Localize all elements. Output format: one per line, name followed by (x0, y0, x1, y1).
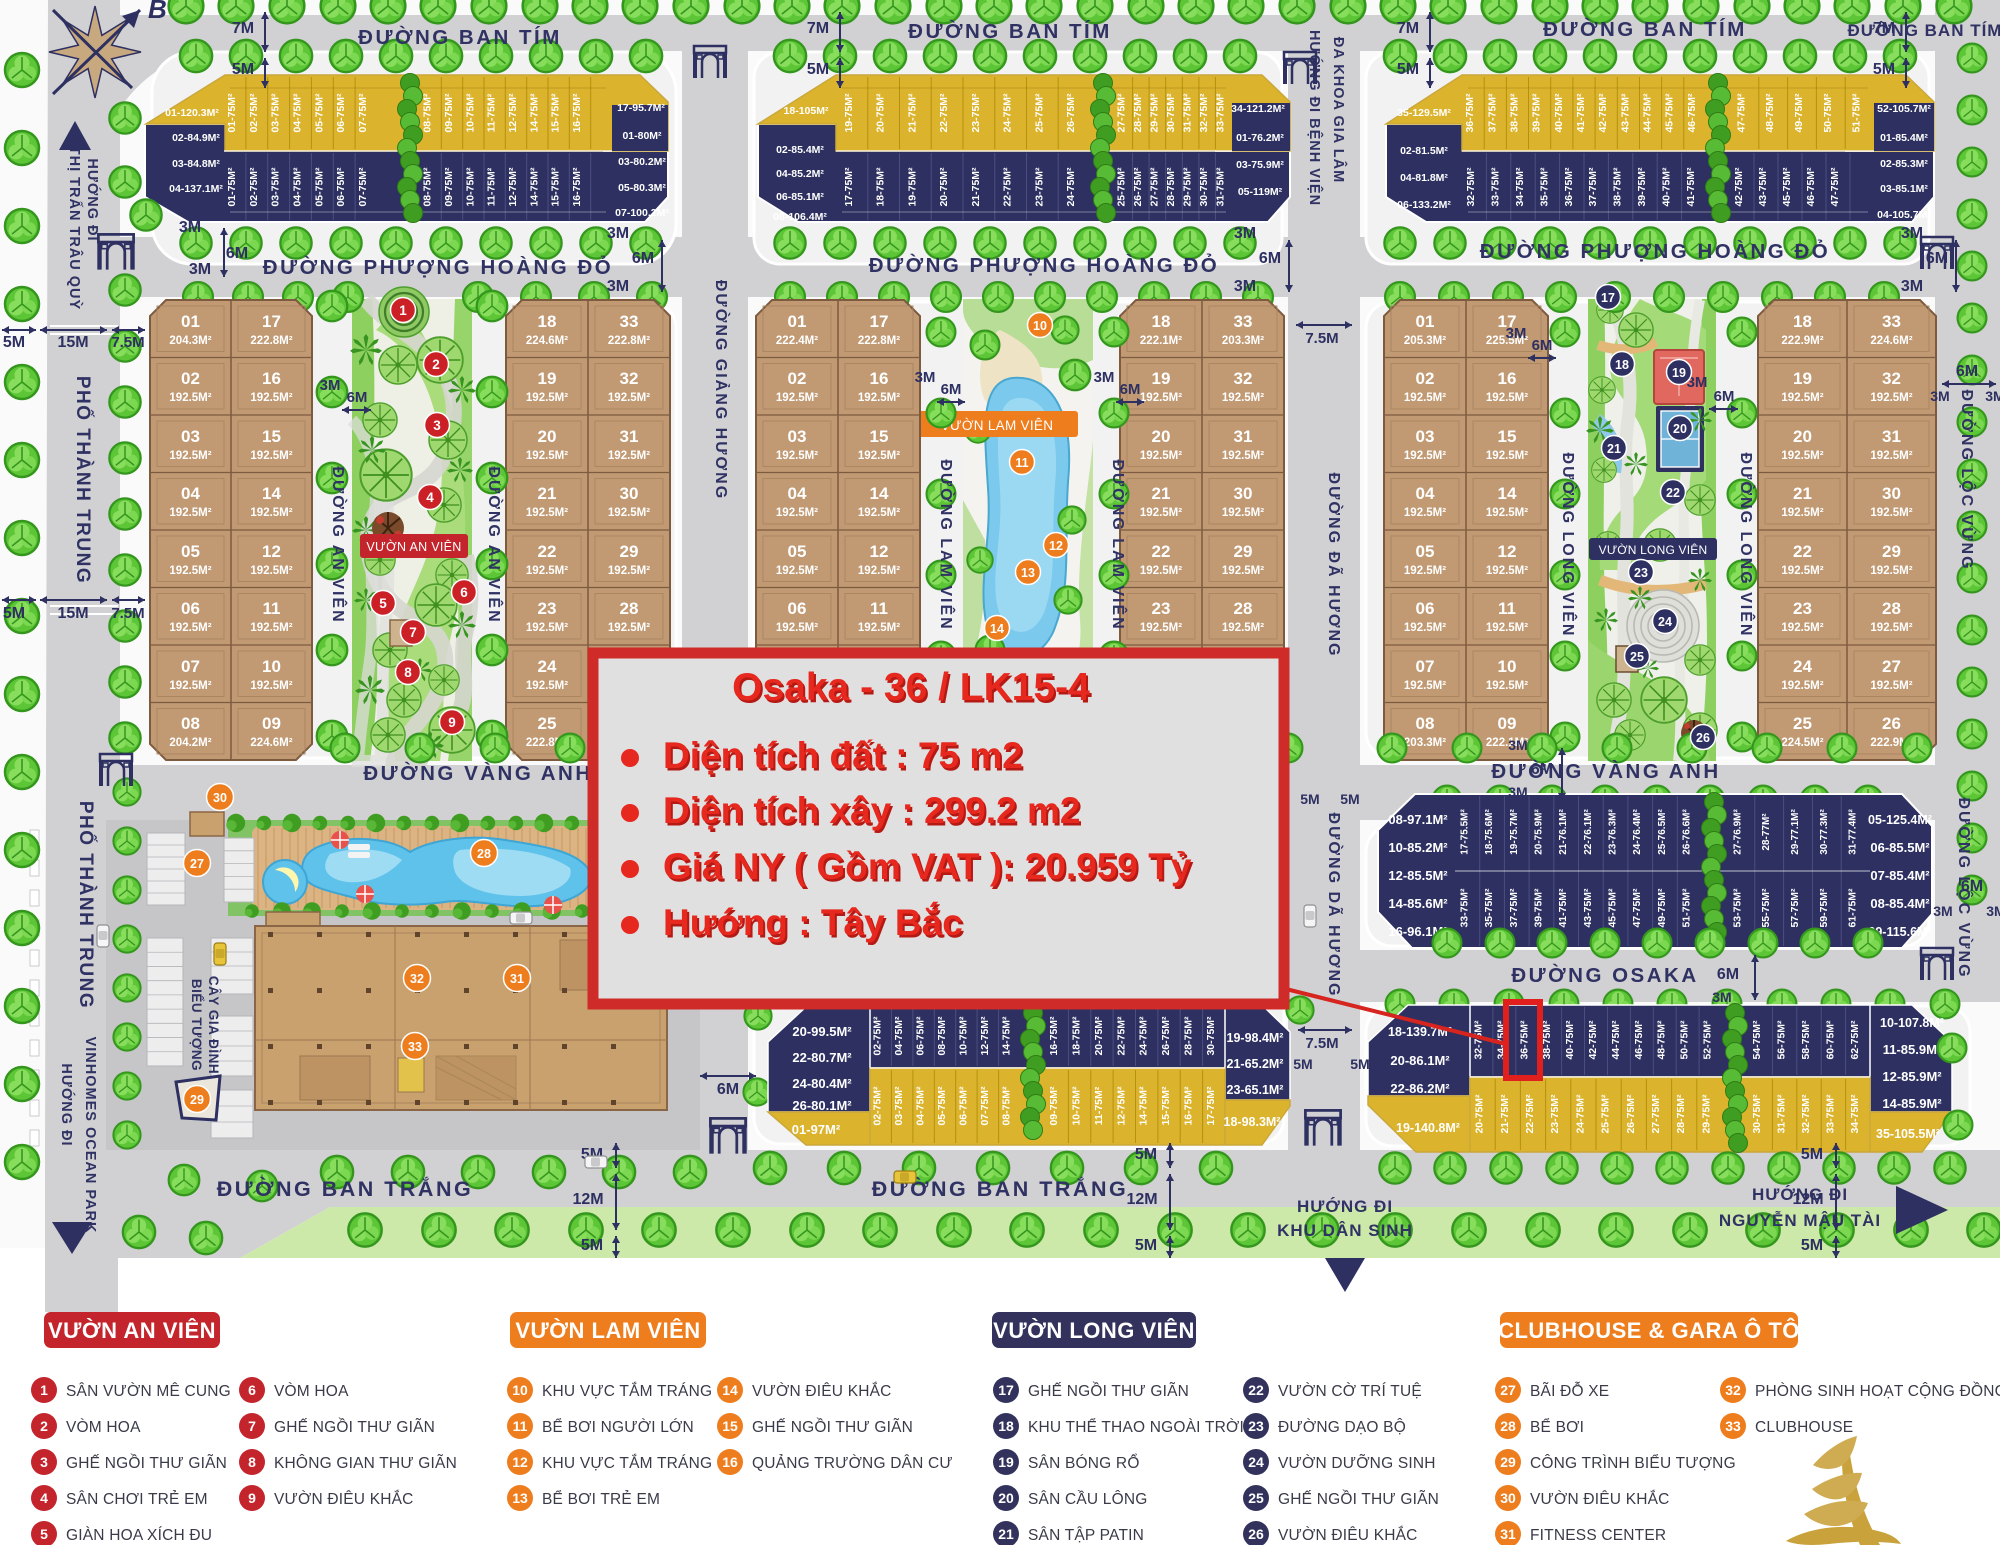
svg-text:14: 14 (1498, 484, 1517, 503)
svg-text:192.5M²: 192.5M² (776, 392, 818, 404)
svg-text:192.5M²: 192.5M² (526, 622, 568, 634)
svg-text:40-75M²: 40-75M² (1660, 167, 1672, 207)
svg-text:16: 16 (722, 1454, 738, 1470)
svg-text:Osaka - 36 / LK15-4: Osaka - 36 / LK15-4 (732, 666, 1090, 709)
svg-text:09: 09 (262, 714, 281, 733)
svg-text:192.5M²: 192.5M² (1486, 392, 1528, 404)
svg-text:VƯỜN AN VIÊN: VƯỜN AN VIÊN (366, 539, 461, 554)
svg-text:HƯỚNG ĐI: HƯỚNG ĐI (58, 1063, 76, 1146)
svg-text:33-75M²: 33-75M² (1215, 93, 1227, 133)
svg-text:192.5M²: 192.5M² (1486, 680, 1528, 692)
svg-text:07: 07 (181, 657, 200, 676)
svg-text:08-106.4M²: 08-106.4M² (773, 211, 827, 223)
svg-text:42-75M²: 42-75M² (1733, 167, 1745, 207)
svg-text:45-75M²: 45-75M² (1664, 93, 1676, 133)
svg-text:22-75M²: 22-75M² (1524, 1094, 1536, 1134)
svg-text:192.5M²: 192.5M² (1140, 392, 1182, 404)
svg-text:6M: 6M (1259, 250, 1281, 267)
svg-text:51-75M²: 51-75M² (1851, 93, 1863, 133)
svg-text:192.5M²: 192.5M² (1781, 392, 1823, 404)
svg-text:01-76.2M²: 01-76.2M² (1236, 132, 1284, 144)
svg-text:5M: 5M (3, 605, 25, 622)
svg-text:ĐƯỜNG BAN TÍM: ĐƯỜNG BAN TÍM (1543, 17, 1747, 41)
svg-text:7.5M: 7.5M (1305, 330, 1338, 347)
svg-text:BỂ BƠI TRẺ EM: BỂ BƠI TRẺ EM (542, 1490, 660, 1508)
svg-text:30-75M²: 30-75M² (1751, 1094, 1763, 1134)
svg-text:VƯỜN ĐIÊU KHẮC: VƯỜN ĐIÊU KHẮC (1278, 1526, 1418, 1544)
svg-text:26-75M²: 26-75M² (1625, 1094, 1637, 1134)
svg-text:192.5M²: 192.5M² (1140, 565, 1182, 577)
svg-text:28-75M²: 28-75M² (1132, 93, 1144, 133)
svg-text:3M: 3M (607, 278, 629, 295)
svg-text:18-105M²: 18-105M² (784, 105, 829, 117)
svg-text:20: 20 (998, 1490, 1014, 1506)
svg-text:01-85.4M²: 01-85.4M² (1880, 132, 1928, 144)
svg-text:22-80.7M²: 22-80.7M² (792, 1050, 852, 1065)
svg-text:26: 26 (1248, 1526, 1264, 1542)
svg-text:14: 14 (722, 1382, 738, 1398)
svg-text:23-75M²: 23-75M² (970, 93, 982, 133)
svg-text:4: 4 (40, 1490, 48, 1506)
svg-text:ĐƯỜNG LỘC VỪNG: ĐƯỜNG LỘC VỪNG (1958, 389, 1977, 570)
svg-text:39-75M²: 39-75M² (1533, 888, 1545, 928)
svg-text:192.5M²: 192.5M² (169, 622, 211, 634)
svg-text:192.5M²: 192.5M² (1404, 507, 1446, 519)
svg-text:25-76.5M²: 25-76.5M² (1657, 809, 1668, 855)
svg-text:20-75M²: 20-75M² (938, 167, 950, 207)
svg-text:39-75M²: 39-75M² (1531, 93, 1543, 133)
svg-text:8: 8 (248, 1454, 256, 1470)
svg-text:224.5M²: 224.5M² (1781, 737, 1823, 749)
svg-text:18-75.6M²: 18-75.6M² (1484, 809, 1495, 855)
svg-text:23: 23 (1152, 599, 1171, 618)
svg-text:192.5M²: 192.5M² (1222, 450, 1264, 462)
svg-text:11: 11 (1498, 599, 1516, 618)
svg-text:192.5M²: 192.5M² (1404, 622, 1446, 634)
svg-text:Diện tích đất : 75 m2: Diện tích đất : 75 m2 (663, 735, 1023, 776)
svg-text:23-65.1M²: 23-65.1M² (1227, 1083, 1284, 1097)
svg-text:33: 33 (1882, 312, 1901, 331)
svg-text:24-75M²: 24-75M² (1065, 167, 1077, 207)
svg-text:KHU DÂN SINH: KHU DÂN SINH (1277, 1221, 1413, 1240)
svg-text:05-75M²: 05-75M² (313, 93, 325, 133)
svg-text:GHẾ NGỒI THƯ GIÃN: GHẾ NGỒI THƯ GIÃN (274, 1418, 435, 1436)
svg-text:59-75M²: 59-75M² (1818, 888, 1830, 928)
svg-text:29: 29 (620, 542, 639, 561)
svg-text:192.5M²: 192.5M² (858, 622, 900, 634)
svg-text:36-75M²: 36-75M² (1518, 1020, 1530, 1060)
svg-text:192.5M²: 192.5M² (858, 507, 900, 519)
svg-text:KHU VỰC TẮM TRÁNG: KHU VỰC TẮM TRÁNG (542, 1382, 712, 1400)
svg-text:BỂ BƠI: BỂ BƠI (1530, 1418, 1584, 1436)
svg-text:ĐƯỜNG DẠO BỘ: ĐƯỜNG DẠO BỘ (1278, 1419, 1406, 1436)
svg-text:7.5M: 7.5M (111, 605, 144, 622)
svg-text:2: 2 (40, 1418, 48, 1434)
svg-text:12: 12 (1498, 542, 1517, 561)
svg-text:35-129.5M²: 35-129.5M² (1397, 107, 1451, 119)
svg-text:32: 32 (410, 972, 424, 986)
svg-text:06: 06 (181, 599, 200, 618)
svg-text:21-75M²: 21-75M² (970, 167, 982, 207)
svg-text:192.5M²: 192.5M² (608, 565, 650, 577)
svg-text:192.5M²: 192.5M² (858, 565, 900, 577)
svg-text:27-75M²: 27-75M² (1115, 93, 1127, 133)
svg-text:22: 22 (1666, 486, 1680, 500)
svg-text:02: 02 (181, 369, 200, 388)
svg-text:16: 16 (870, 369, 889, 388)
svg-text:192.5M²: 192.5M² (526, 392, 568, 404)
svg-text:12M: 12M (1792, 1191, 1823, 1208)
svg-text:06-85.1M²: 06-85.1M² (776, 191, 824, 203)
svg-text:192.5M²: 192.5M² (1781, 450, 1823, 462)
svg-text:01: 01 (1416, 312, 1435, 331)
svg-text:09-75M²: 09-75M² (443, 167, 455, 207)
svg-text:04-85.2M²: 04-85.2M² (776, 168, 824, 180)
svg-text:26: 26 (1696, 731, 1710, 745)
svg-text:31-77.4M²: 31-77.4M² (1848, 809, 1859, 855)
svg-text:23-75M²: 23-75M² (1033, 167, 1045, 207)
svg-text:37-75M²: 37-75M² (1486, 93, 1498, 133)
svg-text:5M: 5M (232, 61, 254, 78)
svg-text:21: 21 (1793, 484, 1812, 503)
svg-text:7: 7 (409, 625, 417, 640)
svg-text:5M: 5M (807, 61, 829, 78)
svg-text:01-75M²: 01-75M² (226, 93, 238, 133)
svg-text:192.5M²: 192.5M² (1404, 392, 1446, 404)
svg-text:11-75M²: 11-75M² (486, 167, 498, 206)
svg-text:62-75M²: 62-75M² (1849, 1020, 1861, 1060)
svg-text:11: 11 (513, 1418, 528, 1434)
svg-text:VƯỜN ĐIÊU KHẮC: VƯỜN ĐIÊU KHẮC (752, 1382, 892, 1400)
svg-text:04-137.1M²: 04-137.1M² (169, 183, 223, 195)
svg-text:19: 19 (1152, 369, 1171, 388)
svg-text:40-75M²: 40-75M² (1553, 93, 1565, 133)
svg-text:CÔNG TRÌNH BIỂU TƯỢNG: CÔNG TRÌNH BIỂU TƯỢNG (1530, 1454, 1736, 1472)
svg-text:06-75M²: 06-75M² (335, 167, 347, 207)
svg-text:GIÀN HOA XÍCH ĐU: GIÀN HOA XÍCH ĐU (66, 1527, 212, 1544)
svg-text:15: 15 (1498, 427, 1517, 446)
svg-text:ĐƯỜNG ĐÃ HƯƠNG: ĐƯỜNG ĐÃ HƯƠNG (1325, 473, 1345, 658)
svg-text:19-75M²: 19-75M² (843, 93, 855, 133)
svg-text:GHẾ NGỒI THƯ GIÃN: GHẾ NGỒI THƯ GIÃN (1278, 1490, 1439, 1508)
svg-text:3M: 3M (189, 261, 211, 278)
svg-text:Hướng : Tây Bắc: Hướng : Tây Bắc (663, 901, 963, 943)
svg-text:3M: 3M (1506, 325, 1527, 342)
svg-text:08: 08 (1416, 714, 1435, 733)
svg-text:192.5M²: 192.5M² (1222, 565, 1264, 577)
svg-text:28-75M²: 28-75M² (1165, 167, 1177, 207)
svg-text:18: 18 (1615, 358, 1629, 372)
svg-text:222.4M²: 222.4M² (776, 335, 818, 347)
svg-text:192.5M²: 192.5M² (858, 392, 900, 404)
svg-text:1: 1 (399, 303, 407, 318)
svg-text:5: 5 (379, 596, 387, 611)
svg-text:01-97M²: 01-97M² (792, 1122, 841, 1137)
svg-text:KHU VỰC TẮM TRÁNG: KHU VỰC TẮM TRÁNG (542, 1454, 712, 1472)
svg-text:23: 23 (1248, 1418, 1264, 1434)
svg-text:23: 23 (538, 599, 557, 618)
svg-text:19-75M²: 19-75M² (906, 167, 918, 207)
svg-text:192.5M²: 192.5M² (250, 680, 292, 692)
svg-text:07-85.4M²: 07-85.4M² (1870, 868, 1930, 883)
svg-text:28: 28 (620, 599, 639, 618)
svg-text:04: 04 (181, 484, 200, 503)
svg-text:SÂN BÓNG RỔ: SÂN BÓNG RỔ (1028, 1454, 1140, 1472)
svg-text:11: 11 (870, 599, 888, 618)
svg-text:9: 9 (448, 715, 456, 730)
svg-text:29: 29 (1234, 542, 1253, 561)
svg-text:3: 3 (40, 1454, 48, 1470)
svg-text:192.5M²: 192.5M² (1781, 680, 1823, 692)
svg-text:10: 10 (262, 657, 281, 676)
svg-text:20: 20 (1793, 427, 1812, 446)
svg-text:192.5M²: 192.5M² (250, 392, 292, 404)
svg-text:31: 31 (1882, 427, 1901, 446)
svg-text:28-77M²: 28-77M² (1761, 813, 1772, 851)
svg-text:32: 32 (1234, 369, 1253, 388)
svg-text:01-120.3M²: 01-120.3M² (165, 107, 219, 119)
svg-text:28-75M²: 28-75M² (1182, 1016, 1194, 1056)
svg-text:28: 28 (477, 847, 491, 861)
svg-text:50-75M²: 50-75M² (1679, 1020, 1691, 1060)
svg-text:03-75M²: 03-75M² (893, 1086, 905, 1126)
svg-text:25-75M²: 25-75M² (1600, 1094, 1612, 1134)
svg-text:33-75M²: 33-75M² (1490, 167, 1502, 207)
svg-text:27-75M²: 27-75M² (1650, 1094, 1662, 1134)
svg-text:192.5M²: 192.5M² (776, 565, 818, 577)
svg-text:33: 33 (1725, 1418, 1741, 1434)
svg-text:18: 18 (1152, 312, 1171, 331)
svg-text:18-75M²: 18-75M² (1071, 1016, 1083, 1056)
svg-text:3: 3 (433, 418, 441, 433)
svg-text:36-75M²: 36-75M² (1464, 93, 1476, 133)
svg-text:42-75M²: 42-75M² (1597, 93, 1609, 133)
svg-text:23: 23 (1793, 599, 1812, 618)
svg-text:36-75M²: 36-75M² (1563, 167, 1575, 207)
svg-text:33: 33 (408, 1040, 422, 1054)
svg-text:SÂN CẦU LÔNG: SÂN CẦU LÔNG (1028, 1491, 1148, 1508)
svg-text:12-75M²: 12-75M² (979, 1016, 991, 1056)
svg-text:192.5M²: 192.5M² (1404, 565, 1446, 577)
svg-text:ĐƯỜNG PHƯỢNG HOÀNG ĐỎ: ĐƯỜNG PHƯỢNG HOÀNG ĐỎ (869, 253, 1219, 277)
svg-text:05-75M²: 05-75M² (313, 167, 325, 207)
svg-text:6M: 6M (1531, 761, 1553, 778)
svg-text:5M: 5M (1300, 791, 1319, 807)
svg-text:11: 11 (263, 599, 281, 618)
svg-text:5M: 5M (1135, 1237, 1157, 1254)
svg-text:15M: 15M (57, 605, 88, 622)
svg-text:5M: 5M (1801, 1146, 1823, 1163)
svg-text:43-75M²: 43-75M² (1757, 167, 1769, 207)
svg-text:192.5M²: 192.5M² (1404, 450, 1446, 462)
svg-text:192.5M²: 192.5M² (1486, 507, 1528, 519)
svg-text:192.5M²: 192.5M² (169, 392, 211, 404)
svg-text:11: 11 (1015, 456, 1028, 470)
svg-text:204.2M²: 204.2M² (169, 737, 211, 749)
svg-text:ĐƯỜNG BAN TÍM: ĐƯỜNG BAN TÍM (1848, 21, 2000, 40)
svg-text:SÂN TẬP PATIN: SÂN TẬP PATIN (1028, 1527, 1144, 1544)
svg-text:12-75M²: 12-75M² (507, 167, 519, 207)
svg-text:ĐƯỜNG AN VIÊN: ĐƯỜNG AN VIÊN (329, 466, 348, 623)
svg-text:06: 06 (1416, 599, 1435, 618)
svg-text:22-75M²: 22-75M² (1115, 1016, 1127, 1056)
svg-text:51-75M²: 51-75M² (1681, 888, 1693, 928)
svg-text:224.6M²: 224.6M² (526, 335, 568, 347)
svg-text:45-75M²: 45-75M² (1781, 167, 1793, 207)
svg-text:ĐƯỜNG DÃ HƯƠNG: ĐƯỜNG DÃ HƯƠNG (1325, 813, 1345, 998)
svg-text:192.5M²: 192.5M² (169, 680, 211, 692)
svg-text:19: 19 (998, 1454, 1014, 1470)
svg-text:CÂY GIA ĐÌNH: CÂY GIA ĐÌNH (206, 976, 221, 1074)
svg-text:ĐƯỜNG PHƯỢNG HOÀNG ĐỎ: ĐƯỜNG PHƯỢNG HOÀNG ĐỎ (1480, 239, 1830, 263)
svg-text:3M: 3M (1712, 989, 1731, 1005)
svg-text:14: 14 (870, 484, 889, 503)
svg-text:08-75M²: 08-75M² (422, 93, 434, 133)
svg-text:30: 30 (620, 484, 639, 503)
svg-text:HƯỚNG ĐI: HƯỚNG ĐI (1297, 1197, 1393, 1216)
svg-text:10-85.2M²: 10-85.2M² (1388, 840, 1448, 855)
svg-text:04-75M²: 04-75M² (292, 93, 304, 133)
svg-text:03: 03 (1416, 427, 1435, 446)
svg-text:12: 12 (1049, 539, 1063, 553)
svg-text:41-75M²: 41-75M² (1685, 167, 1697, 207)
svg-text:PHỐ THÀNH TRUNG: PHỐ THÀNH TRUNG (75, 801, 97, 1009)
svg-text:7: 7 (248, 1418, 256, 1434)
svg-text:07-75M²: 07-75M² (357, 167, 369, 207)
svg-text:32: 32 (1725, 1382, 1741, 1398)
svg-text:31-75M²: 31-75M² (1182, 93, 1194, 133)
svg-text:3M: 3M (179, 219, 201, 236)
svg-text:ĐƯỜNG BAN TÍM: ĐƯỜNG BAN TÍM (908, 19, 1112, 43)
svg-text:29-75M²: 29-75M² (1700, 1094, 1712, 1134)
svg-text:26-76.6M²: 26-76.6M² (1682, 809, 1693, 855)
svg-text:SÂN VƯỜN MÊ CUNG: SÂN VƯỜN MÊ CUNG (66, 1383, 231, 1400)
svg-text:3M: 3M (1986, 903, 2000, 919)
svg-text:30-75M²: 30-75M² (1165, 93, 1177, 133)
svg-text:17: 17 (1601, 291, 1615, 305)
svg-text:06-85.5M²: 06-85.5M² (1870, 840, 1930, 855)
svg-text:10-75M²: 10-75M² (464, 93, 476, 133)
svg-text:10-75M²: 10-75M² (1071, 1086, 1083, 1126)
svg-text:12M: 12M (572, 1191, 603, 1208)
svg-text:6M: 6M (632, 250, 654, 267)
svg-text:THỊ TRẤN TRÂU QUỲ: THỊ TRẤN TRÂU QUỲ (66, 146, 84, 310)
svg-text:192.5M²: 192.5M² (169, 450, 211, 462)
svg-text:8: 8 (404, 665, 412, 680)
svg-text:45-75M²: 45-75M² (1607, 888, 1619, 928)
svg-text:30-75M²: 30-75M² (1198, 167, 1210, 207)
svg-text:48-75M²: 48-75M² (1764, 93, 1776, 133)
svg-text:03-85.1M²: 03-85.1M² (1880, 183, 1928, 195)
svg-text:52-75M²: 52-75M² (1702, 1020, 1714, 1060)
svg-text:14: 14 (262, 484, 281, 503)
svg-text:5M: 5M (1340, 791, 1359, 807)
svg-text:VƯỜN AN VIÊN: VƯỜN AN VIÊN (48, 1318, 216, 1343)
svg-text:192.5M²: 192.5M² (526, 507, 568, 519)
svg-text:192.5M²: 192.5M² (608, 392, 650, 404)
svg-text:3M: 3M (1508, 737, 1527, 753)
svg-text:07-75M²: 07-75M² (979, 1086, 991, 1126)
svg-text:192.5M²: 192.5M² (1140, 507, 1182, 519)
svg-text:43-75M²: 43-75M² (1582, 888, 1594, 928)
svg-text:19: 19 (1793, 369, 1812, 388)
svg-text:02: 02 (1416, 369, 1435, 388)
svg-text:VƯỜN ĐIÊU KHẮC: VƯỜN ĐIÊU KHẮC (274, 1490, 414, 1508)
svg-text:GHẾ NGỒI THƯ GIÃN: GHẾ NGỒI THƯ GIÃN (752, 1418, 913, 1436)
svg-text:05-75M²: 05-75M² (936, 1086, 948, 1126)
svg-text:192.5M²: 192.5M² (1870, 392, 1912, 404)
svg-text:52-105.7M²: 52-105.7M² (1877, 103, 1931, 115)
svg-text:27-75M²: 27-75M² (1148, 167, 1160, 207)
svg-text:03: 03 (788, 427, 807, 446)
svg-text:22: 22 (538, 542, 557, 561)
svg-text:5M: 5M (1397, 61, 1419, 78)
svg-text:08-75M²: 08-75M² (936, 1016, 948, 1056)
svg-text:24-80.4M²: 24-80.4M² (792, 1076, 852, 1091)
svg-text:25: 25 (1630, 650, 1644, 664)
svg-text:6: 6 (248, 1382, 256, 1398)
svg-text:06-75M²: 06-75M² (335, 93, 347, 133)
svg-text:04-75M²: 04-75M² (292, 167, 304, 207)
svg-text:6M: 6M (347, 389, 368, 406)
svg-text:GHẾ NGỒI THƯ GIÃN: GHẾ NGỒI THƯ GIÃN (1028, 1382, 1189, 1400)
svg-text:02: 02 (788, 369, 807, 388)
svg-text:3M: 3M (1933, 903, 1952, 919)
svg-text:KHÔNG GIAN THƯ GIÃN: KHÔNG GIAN THƯ GIÃN (274, 1455, 457, 1472)
svg-text:192.5M²: 192.5M² (858, 450, 900, 462)
svg-text:192.5M²: 192.5M² (169, 507, 211, 519)
svg-text:3M: 3M (1094, 369, 1115, 386)
svg-text:192.5M²: 192.5M² (1486, 565, 1528, 577)
svg-text:38-75M²: 38-75M² (1612, 167, 1624, 207)
svg-text:38-75M²: 38-75M² (1509, 93, 1521, 133)
svg-text:15: 15 (870, 427, 889, 446)
svg-text:46-75M²: 46-75M² (1633, 1020, 1645, 1060)
svg-text:32-75M²: 32-75M² (1465, 167, 1477, 207)
svg-text:14-75M²: 14-75M² (528, 93, 540, 133)
svg-text:20-86.1M²: 20-86.1M² (1390, 1053, 1450, 1068)
svg-text:17-95.7M²: 17-95.7M² (617, 102, 665, 114)
svg-text:34-75M²: 34-75M² (1514, 167, 1526, 207)
svg-text:27: 27 (1500, 1382, 1516, 1398)
svg-text:23-76.3M²: 23-76.3M² (1608, 809, 1619, 855)
svg-text:192.5M²: 192.5M² (1486, 622, 1528, 634)
svg-text:26-75M²: 26-75M² (1132, 167, 1144, 207)
svg-text:ĐA KHOA GIA LÂM: ĐA KHOA GIA LÂM (1330, 37, 1348, 183)
svg-text:30: 30 (1500, 1490, 1516, 1506)
svg-text:Giá NY ( Gồm VAT ): 20.959 Tỷ: Giá NY ( Gồm VAT ): 20.959 Tỷ (663, 846, 1192, 887)
svg-text:37-75M²: 37-75M² (1587, 167, 1599, 207)
svg-text:08: 08 (181, 714, 200, 733)
svg-text:ĐƯỜNG VÀNG ANH: ĐƯỜNG VÀNG ANH (363, 761, 592, 785)
svg-text:192.5M²: 192.5M² (1870, 565, 1912, 577)
svg-text:14-85.6M²: 14-85.6M² (1388, 896, 1448, 911)
svg-text:11-85.9M²: 11-85.9M² (1883, 1042, 1942, 1057)
svg-text:02-75M²: 02-75M² (872, 1086, 884, 1126)
svg-text:21-75M²: 21-75M² (906, 93, 918, 133)
svg-text:QUẢNG TRƯỜNG DÂN CƯ: QUẢNG TRƯỜNG DÂN CƯ (752, 1455, 953, 1472)
svg-text:30: 30 (1882, 484, 1901, 503)
svg-text:35-75M²: 35-75M² (1483, 888, 1495, 928)
svg-text:BIỂU TƯỢNG: BIỂU TƯỢNG (189, 979, 204, 1071)
svg-text:41-75M²: 41-75M² (1575, 93, 1587, 133)
svg-text:7.5M: 7.5M (1305, 1035, 1338, 1052)
svg-text:5M: 5M (1293, 1056, 1312, 1072)
svg-text:16: 16 (262, 369, 281, 388)
svg-text:2: 2 (432, 357, 440, 372)
svg-text:01: 01 (788, 312, 807, 331)
svg-text:05: 05 (788, 542, 807, 561)
